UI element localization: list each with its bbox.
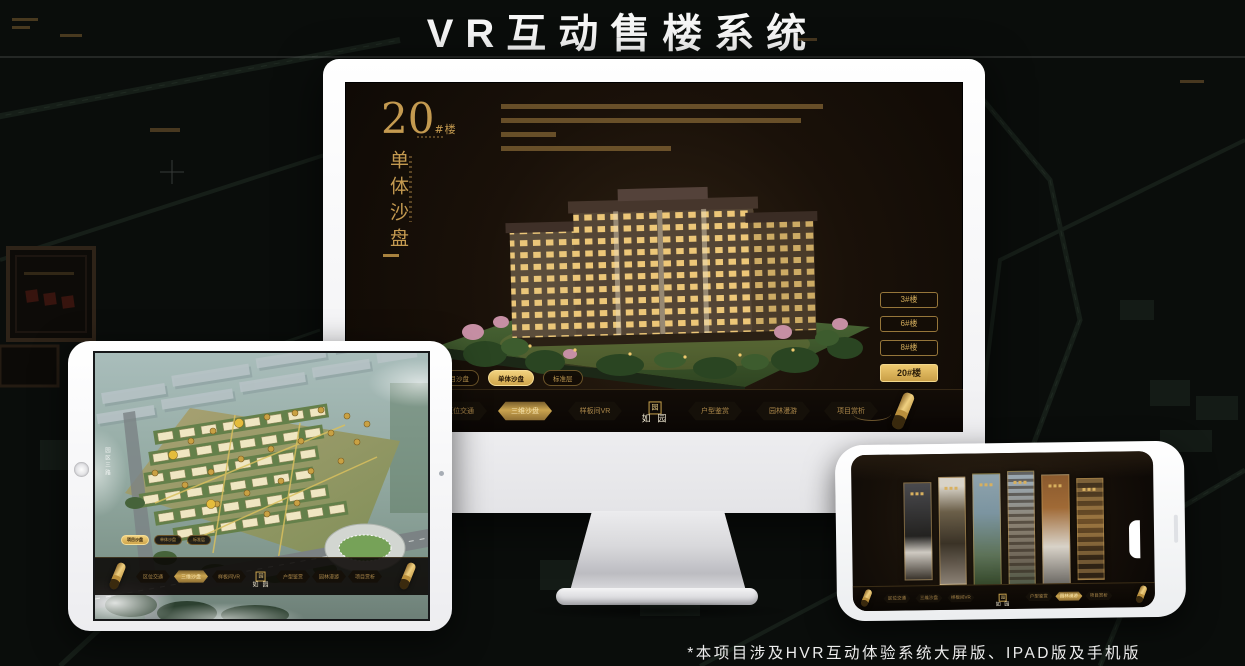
headline-suffix: #楼 bbox=[434, 123, 456, 136]
scroll-page-icon[interactable] bbox=[398, 561, 417, 590]
logo-seal-icon: 园 bbox=[999, 594, 1007, 602]
tablet-subtabs: 项目沙盘 单体沙盘 标准层 bbox=[121, 535, 211, 545]
nav-item-floorplans[interactable]: 户型鉴赏 bbox=[701, 406, 729, 416]
phone-navbar: 区位交通 三维沙盘 样板间VR 园 如 园 户型鉴赏 园林漫游 项目赏析 bbox=[853, 582, 1155, 611]
scroll-page-icon[interactable] bbox=[1135, 585, 1148, 604]
building-button-3[interactable]: 3#楼 bbox=[880, 292, 938, 308]
desktop-subtabs: 项目沙盘 单体沙盘 标准层 bbox=[433, 370, 583, 386]
headline-english-caption-2 bbox=[417, 136, 445, 138]
headline-english-caption bbox=[409, 156, 412, 222]
headline-underline bbox=[383, 254, 399, 257]
gallery-panel[interactable] bbox=[938, 477, 967, 585]
page-title: VR互动售楼系统 bbox=[0, 1, 1245, 59]
building-button-8[interactable]: 8#楼 bbox=[880, 340, 938, 356]
nav-item-garden-tour[interactable]: 园林漫游 bbox=[769, 406, 797, 416]
phone-speaker-icon bbox=[1174, 515, 1178, 543]
gallery-panel[interactable] bbox=[1007, 471, 1036, 589]
footnote: *本项目涉及HVR互动体验系统大屏版、IPAD版及手机版 bbox=[687, 641, 1141, 663]
app-logo: 园 如 园 bbox=[253, 564, 270, 588]
desktop-headline: 20#楼 bbox=[381, 98, 457, 140]
logo-seal-icon: 园 bbox=[256, 571, 266, 581]
nav-item-floorplans[interactable]: 户型鉴赏 bbox=[283, 573, 303, 580]
tablet-screen: 园区三路 项目沙盘 单体沙盘 标准层 区位交通 三维沙盘 样板间VR 园 如 园… bbox=[95, 353, 428, 619]
scroll-page-icon[interactable] bbox=[890, 391, 915, 431]
monitor-stand-neck bbox=[570, 511, 746, 591]
nav-item-floorplans[interactable]: 户型鉴赏 bbox=[1030, 593, 1048, 599]
subtab-standard-floor[interactable]: 标准层 bbox=[543, 370, 583, 386]
monitor-shadow bbox=[521, 602, 797, 620]
tablet-device: 园区三路 项目沙盘 单体沙盘 标准层 区位交通 三维沙盘 样板间VR 园 如 园… bbox=[68, 341, 452, 631]
nav-item-garden-tour[interactable]: 园林漫游 bbox=[1060, 593, 1078, 599]
building-3d-model[interactable] bbox=[415, 162, 885, 402]
gallery-panel[interactable] bbox=[972, 473, 1001, 587]
scroll-flourish bbox=[853, 407, 891, 421]
phone-screen: 区位交通 三维沙盘 样板间VR 园 如 园 户型鉴赏 园林漫游 项目赏析 bbox=[851, 451, 1155, 611]
nav-item-location-traffic[interactable]: 区位交通 bbox=[143, 573, 163, 580]
subtab-single-sandbox[interactable]: 单体沙盘 bbox=[488, 370, 534, 386]
gallery-panel[interactable] bbox=[1041, 474, 1070, 584]
scroll-page-icon[interactable] bbox=[108, 561, 127, 590]
nav-item-model-room-vr[interactable]: 样板间VR bbox=[218, 573, 240, 580]
gallery-panel[interactable] bbox=[903, 482, 932, 580]
nav-item-3d-sandbox[interactable]: 三维沙盘 bbox=[181, 573, 201, 580]
headline-vertical-title: 单体沙盘 bbox=[385, 150, 412, 254]
phone-device: 区位交通 三维沙盘 样板间VR 园 如 园 户型鉴赏 园林漫游 项目赏析 bbox=[835, 441, 1186, 622]
intro-paragraph bbox=[501, 104, 841, 160]
building-button-6[interactable]: 6#楼 bbox=[880, 316, 938, 332]
app-logo: 园 如 园 bbox=[642, 396, 669, 424]
phone-notch bbox=[1129, 520, 1141, 558]
nav-item-location-traffic[interactable]: 区位交通 bbox=[888, 595, 906, 601]
home-button[interactable] bbox=[74, 462, 89, 477]
tablet-navbar: 区位交通 三维沙盘 样板间VR 园 如 园 户型鉴赏 园林漫游 项目赏析 bbox=[95, 557, 428, 595]
nav-item-3d-sandbox[interactable]: 三维沙盘 bbox=[511, 406, 539, 416]
subtab-standard-floor[interactable]: 标准层 bbox=[187, 535, 211, 545]
building-selector: 3#楼 6#楼 8#楼 20#楼 bbox=[880, 292, 938, 382]
front-camera-icon bbox=[439, 471, 444, 476]
nav-item-project-gallery[interactable]: 项目赏析 bbox=[355, 573, 375, 580]
road-name-label: 园区三路 bbox=[103, 447, 111, 477]
building-button-20[interactable]: 20#楼 bbox=[880, 364, 938, 382]
nav-item-3d-sandbox[interactable]: 三维沙盘 bbox=[920, 595, 938, 601]
subtab-single-sandbox[interactable]: 单体沙盘 bbox=[154, 535, 182, 545]
app-logo: 园 如 园 bbox=[995, 586, 1010, 608]
subtab-project-sandbox[interactable]: 项目沙盘 bbox=[121, 535, 149, 545]
nav-item-project-gallery[interactable]: 项目赏析 bbox=[1090, 593, 1108, 599]
nav-item-garden-tour[interactable]: 园林漫游 bbox=[319, 573, 339, 580]
poster-stage: VR互动售楼系统 20#楼 单体沙盘 bbox=[0, 0, 1245, 666]
gallery-panels bbox=[903, 470, 1105, 591]
gallery-panel[interactable] bbox=[1076, 478, 1105, 580]
logo-seal-icon: 园 bbox=[649, 401, 662, 414]
nav-item-model-room-vr[interactable]: 样板间VR bbox=[951, 595, 971, 601]
scroll-page-icon[interactable] bbox=[860, 588, 873, 607]
nav-item-model-room-vr[interactable]: 样板间VR bbox=[580, 406, 611, 416]
